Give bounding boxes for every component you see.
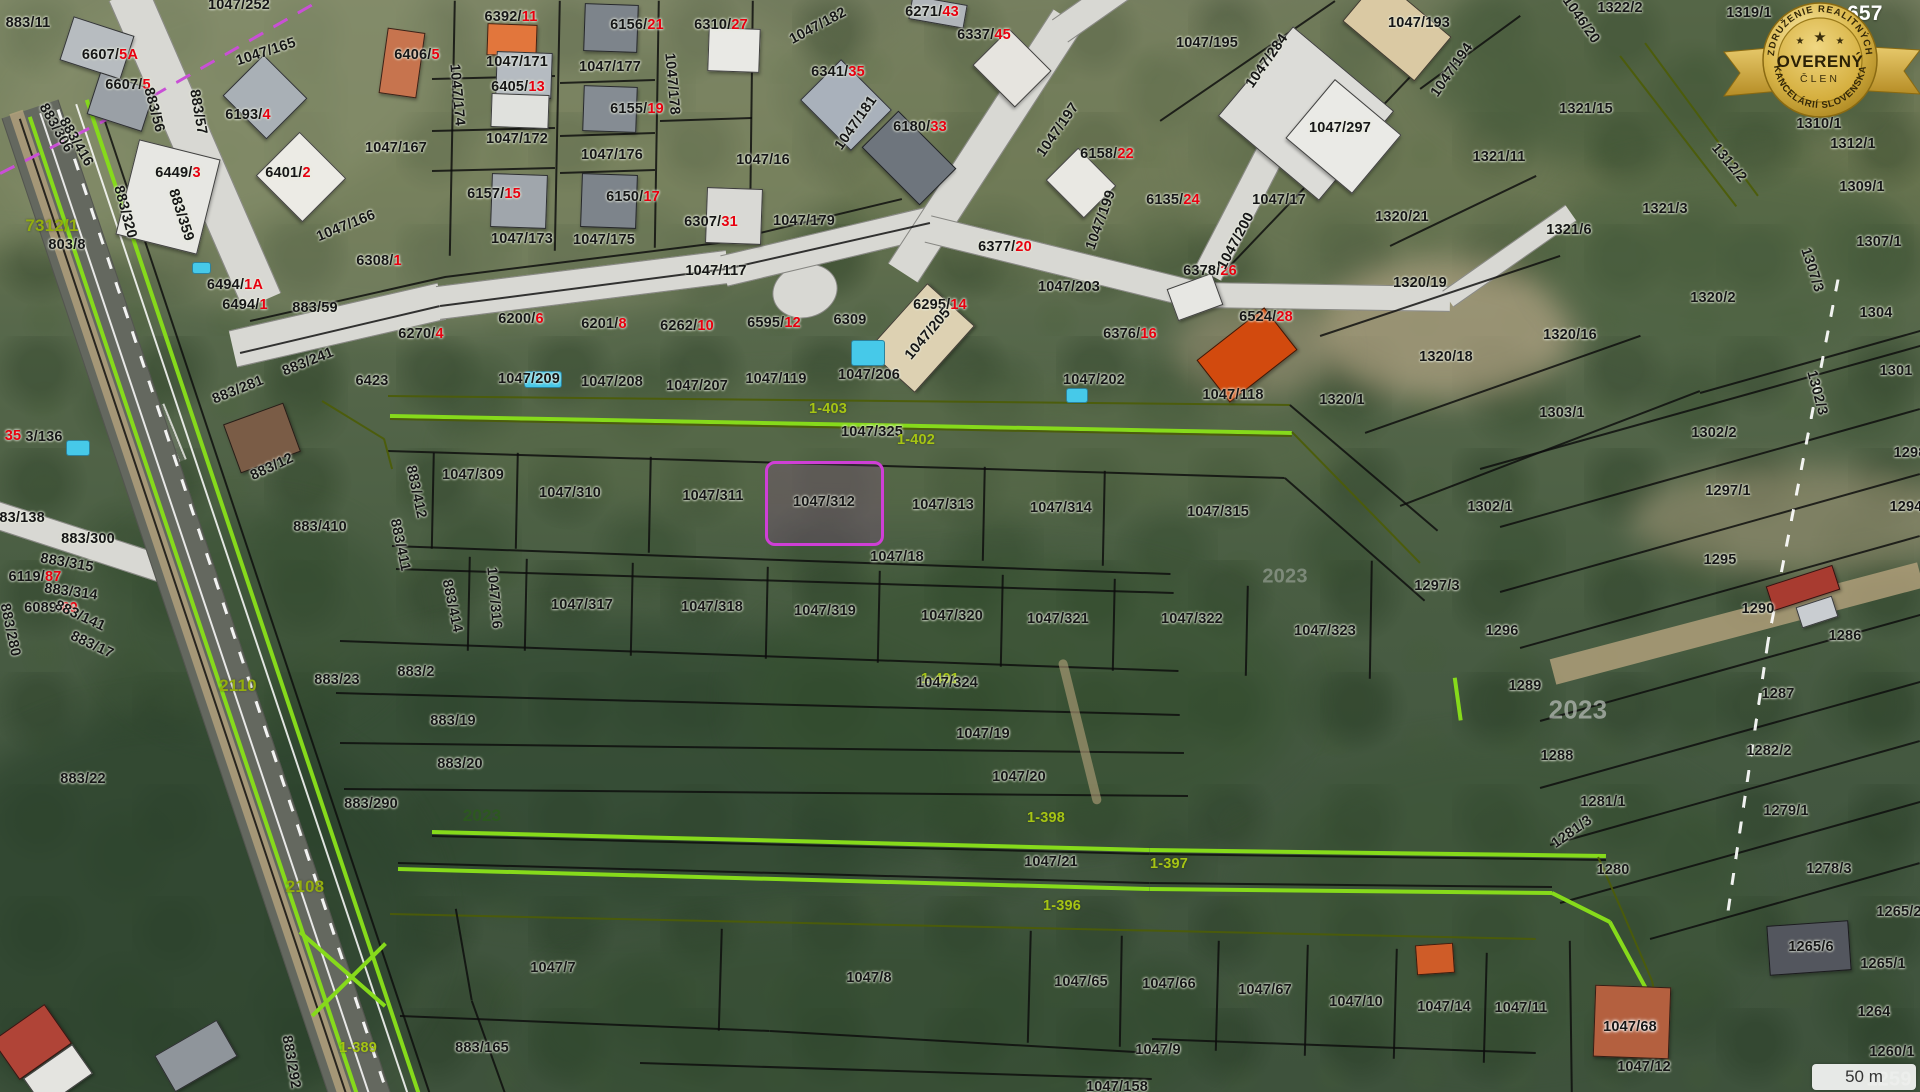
parcel-number: 1047/309 xyxy=(442,467,504,483)
parcel-label: 6308/1 xyxy=(356,253,402,269)
building-number: 11 xyxy=(522,9,538,25)
parcel-label: 1320/1 xyxy=(1319,392,1365,408)
parcel-number: 1297/3 xyxy=(1414,578,1460,594)
parcel-label: 1047/11 xyxy=(1494,1000,1547,1016)
parcel-label: 1279/1 xyxy=(1763,803,1809,819)
parcel-label: 1047/20 xyxy=(992,769,1046,785)
swimming-pool xyxy=(66,440,90,456)
parcel-label: 883/141 xyxy=(52,597,108,634)
parcel-label: 803/8 xyxy=(48,237,85,253)
parcel-number: 6607/ xyxy=(105,77,142,93)
parcel-label: 1047/252 xyxy=(208,0,270,13)
parcel-number: 2023 xyxy=(1262,566,1307,588)
parcel-number: 1304 xyxy=(1859,305,1892,321)
parcel-number: 883/414 xyxy=(439,578,466,634)
parcel-number: 1265/2 xyxy=(1876,904,1920,920)
parcel-number: 1320/21 xyxy=(1375,209,1429,225)
parcel-number: 1047/206 xyxy=(838,367,900,383)
parcel-number: 1047/171 xyxy=(486,54,548,70)
parcel-label: 1047/297 xyxy=(1309,120,1371,136)
parcel-label: 1320/16 xyxy=(1543,327,1597,343)
parcel-number: 1047/21 xyxy=(1024,854,1078,870)
building-number: 4 xyxy=(436,326,444,342)
parcel-number: 1298 xyxy=(1893,445,1920,461)
parcel-label: 1047/323 xyxy=(1294,623,1356,639)
parcel-label: 1047/318 xyxy=(681,599,743,615)
parcel-number: 1047/173 xyxy=(491,231,553,247)
parcel-number: 1264 xyxy=(1857,1004,1890,1020)
building-number: 15 xyxy=(504,186,521,202)
parcel-label: 1265/6 xyxy=(1788,939,1834,955)
parcel-label: 883/59 xyxy=(292,300,338,316)
parcel-number: 6341/ xyxy=(811,64,848,80)
scale-bar: 50 m xyxy=(1812,1064,1916,1090)
parcel-number: 1047/18 xyxy=(870,549,924,565)
parcel-label: 1287 xyxy=(1761,686,1794,702)
parcel-number: 883/138 xyxy=(0,510,45,526)
parcel-number: 1287 xyxy=(1761,686,1794,702)
parcel-number: 1047/321 xyxy=(1027,611,1089,627)
parcel-number: 6135/ xyxy=(1146,192,1183,208)
parcel-label: 6310/27 xyxy=(694,17,748,33)
parcel-number: 1047/175 xyxy=(573,232,635,248)
parcel-number: 1290 xyxy=(1741,601,1774,617)
parcel-label: 1-396 xyxy=(1043,898,1081,914)
parcel-number: 1047/310 xyxy=(539,485,601,501)
parcel-number: 883/2 xyxy=(397,664,434,680)
parcel-number: 1047/311 xyxy=(682,488,743,504)
parcel-label: 6271/43 xyxy=(905,4,959,20)
parcel-number: 1047/7 xyxy=(530,960,576,976)
parcel-number: 6494/ xyxy=(222,297,259,313)
swimming-pool xyxy=(192,262,211,274)
boundary-line xyxy=(455,909,473,1001)
parcel-label: 1047/167 xyxy=(365,140,427,156)
parcel-number: 6201/ xyxy=(581,316,618,332)
parcel-number: 1302/2 xyxy=(1691,425,1737,441)
building-number: 12 xyxy=(784,315,801,331)
parcel-label: 883/165 xyxy=(455,1040,509,1056)
parcel-label: 1297/1 xyxy=(1705,483,1751,499)
parcel-number: 883/290 xyxy=(344,796,398,812)
parcel-number: 883/280 xyxy=(0,602,23,658)
parcel-number: 1047/319 xyxy=(794,603,856,619)
parcel-number: 1047/322 xyxy=(1161,611,1223,627)
parcel-number: 1047/315 xyxy=(1187,504,1249,520)
parcel-number: 1265/1 xyxy=(1860,956,1906,972)
parcel-number: 1047/203 xyxy=(1038,279,1100,295)
building-number: 43 xyxy=(942,4,959,20)
parcel-number: 1286 xyxy=(1828,628,1861,644)
parcel-label: 6158/22 xyxy=(1080,146,1134,162)
parcel-label: 1286 xyxy=(1828,628,1861,644)
parcel-number: 1288 xyxy=(1540,748,1573,764)
parcel-number: 1-398 xyxy=(1027,810,1065,826)
parcel-number: 3/136 xyxy=(25,429,62,445)
parcel-label: 6401/2 xyxy=(265,165,311,181)
terrain-patch xyxy=(1630,465,1920,575)
parcel-number: 1302/1 xyxy=(1467,499,1513,515)
parcel-number: 883/59 xyxy=(292,300,338,316)
parcel-label: 1047/117 xyxy=(685,263,746,279)
parcel-number: 1321/6 xyxy=(1546,222,1592,238)
parcel-number: 1047/313 xyxy=(912,497,974,513)
boundary-line xyxy=(1453,678,1462,721)
parcel-number: 1047/297 xyxy=(1309,120,1371,136)
parcel-number: 6309 xyxy=(833,312,866,328)
boundary-line xyxy=(392,545,1170,575)
parcel-label: 6376/16 xyxy=(1103,326,1157,342)
parcel-number: 1282/2 xyxy=(1746,743,1792,759)
parcel-number: 6308/ xyxy=(356,253,393,269)
parcel-label: 1321/6 xyxy=(1546,222,1592,238)
parcel-label: 1322/2 xyxy=(1597,0,1643,16)
boundary-line xyxy=(383,439,393,470)
parcel-number: 1281/1 xyxy=(1580,794,1626,810)
building-number: 8 xyxy=(619,316,627,332)
parcel-label: 1302/3 xyxy=(1803,369,1830,417)
parcel-number: 6524/ xyxy=(1239,309,1276,325)
parcel-number: 1047/68 xyxy=(1603,1019,1657,1035)
parcel-label: 6406/5 xyxy=(394,47,440,63)
parcel-label: 1047/309 xyxy=(442,467,504,483)
parcel-number: 1047/17 xyxy=(1252,192,1306,208)
parcel-label: 1047/176 xyxy=(581,147,643,163)
parcel-label: 6307/31 xyxy=(684,214,738,230)
parcel-label: 6341/35 xyxy=(811,64,865,80)
parcel-label: 6156/21 xyxy=(610,17,664,33)
parcel-label: 1047/17 xyxy=(1252,192,1306,208)
parcel-label: 1047/182 xyxy=(787,4,849,47)
parcel-number: 883/300 xyxy=(61,531,115,547)
parcel-number: 1047/325 xyxy=(841,424,903,440)
parcel-number: 883/412 xyxy=(403,464,430,520)
parcel-number: 1280 xyxy=(1596,862,1629,878)
parcel-label: 883/22 xyxy=(60,771,106,787)
parcel-number: 1047/207 xyxy=(666,378,728,394)
parcel-label: 2108 xyxy=(286,877,325,897)
parcel-label: 1047/9 xyxy=(1135,1042,1181,1058)
parcel-number: 1047/14 xyxy=(1417,999,1471,1015)
parcel-label: 883/410 xyxy=(293,519,347,535)
parcel-label: 1047/314 xyxy=(1030,500,1092,516)
parcel-number: 1307/1 xyxy=(1856,234,1902,250)
parcel-number: 1047/118 xyxy=(1202,387,1263,403)
parcel-label: 1047/325 xyxy=(841,424,903,440)
parcel-number: 1047/182 xyxy=(787,4,849,47)
parcel-number: 883/141 xyxy=(52,597,108,634)
parcel-number: 1-403 xyxy=(809,401,847,417)
parcel-label: 1047/14 xyxy=(1417,999,1471,1015)
building-number: 4 xyxy=(263,107,271,123)
parcel-label: 883/2 xyxy=(397,664,434,680)
parcel-label: 1320/2 xyxy=(1690,290,1736,306)
parcel-label: 7312/1 xyxy=(25,216,78,236)
parcel-number: 1-389 xyxy=(339,1040,377,1056)
parcel-label: 1288 xyxy=(1540,748,1573,764)
boundary-line xyxy=(1369,561,1373,679)
parcel-label: 883/412 xyxy=(403,464,430,520)
parcel-number: 883/11 xyxy=(6,15,51,31)
boundary-line xyxy=(431,453,435,549)
parcel-number: 883/20 xyxy=(437,756,483,772)
terrain-patch xyxy=(520,920,1220,1092)
parcel-number: 1047/208 xyxy=(581,374,643,390)
parcel-number: 6377/ xyxy=(978,239,1015,255)
parcel-label: 1-397 xyxy=(1150,856,1188,872)
overeny-badge: ZDRUŽENIE REALITNÝCH KANCELÁRIÍ SLOVENSK… xyxy=(1722,0,1920,126)
parcel-label: 883/138 xyxy=(0,510,45,526)
parcel-number: 1047/158 xyxy=(1086,1079,1148,1092)
parcel-number: 2023 xyxy=(1549,695,1608,725)
parcel-label: 1047/68 xyxy=(1603,1019,1657,1035)
parcel-label: 6392/11 xyxy=(484,9,537,25)
parcel-label: 1047/209 xyxy=(498,371,560,387)
parcel-number: 1320/18 xyxy=(1419,349,1473,365)
parcel-number: 6376/ xyxy=(1103,326,1140,342)
building-number: 21 xyxy=(647,17,664,33)
parcel-number: 1047/324 xyxy=(916,675,978,691)
parcel-label: 1047/7 xyxy=(530,960,576,976)
parcel-number: 6156/ xyxy=(610,17,647,33)
parcel-label: 1047/19 xyxy=(956,726,1010,742)
parcel-number: 6607/ xyxy=(82,47,119,63)
parcel-label: 1265/2 xyxy=(1876,904,1920,920)
parcel-label: 6423 xyxy=(355,373,388,389)
parcel-label: 1047/175 xyxy=(573,232,635,248)
badge-member: ČLEN xyxy=(1800,72,1840,85)
parcel-number: 1321/3 xyxy=(1642,201,1688,217)
parcel-label: 6337/45 xyxy=(957,27,1011,43)
parcel-label: 1280 xyxy=(1596,862,1629,878)
parcel-number: 7312/1 xyxy=(25,216,78,235)
parcel-label: 883/23 xyxy=(314,672,360,688)
parcel-label: 883/11 xyxy=(6,15,51,31)
parcel-label: 3/136 xyxy=(25,429,62,445)
parcel-label: 1302/2 xyxy=(1691,425,1737,441)
building-number: 20 xyxy=(1015,239,1032,255)
building-number: 1 xyxy=(394,253,402,269)
building-number: 19 xyxy=(647,101,664,117)
parcel-label: 1301 xyxy=(1879,363,1912,379)
svg-text:★: ★ xyxy=(1836,36,1845,47)
parcel-label: 1047/10 xyxy=(1329,994,1383,1010)
parcel-label: 1047/320 xyxy=(921,608,983,624)
parcel-number: 883/19 xyxy=(430,713,476,729)
building-number: 24 xyxy=(1183,192,1200,208)
parcel-label: 1320/19 xyxy=(1393,275,1447,291)
building-number: 22 xyxy=(1117,146,1134,162)
parcel-number: 803/8 xyxy=(48,237,85,253)
building-number: 3 xyxy=(193,165,201,181)
parcel-number: 6155/ xyxy=(610,101,647,117)
parcel-label: 6449/3 xyxy=(155,165,201,181)
parcel-label: 1302/1 xyxy=(1467,499,1513,515)
parcel-label: 1320/21 xyxy=(1375,209,1429,225)
parcel-number: 6310/ xyxy=(694,17,731,33)
parcel-label: 1312/1 xyxy=(1830,136,1876,152)
building xyxy=(1415,943,1455,976)
parcel-label: 1297/3 xyxy=(1414,578,1460,594)
parcel-number: 6307/ xyxy=(684,214,721,230)
parcel-label: 1282/2 xyxy=(1746,743,1792,759)
parcel-number: 1312/1 xyxy=(1830,136,1876,152)
parcel-number: 1295 xyxy=(1703,552,1736,568)
parcel-label: 6607/5A xyxy=(82,47,138,63)
parcel-label: 1047/67 xyxy=(1238,982,1292,998)
parcel-label: 883/300 xyxy=(61,531,115,547)
parcel-label: 6155/19 xyxy=(610,101,664,117)
parcel-label: 1047/158 xyxy=(1086,1079,1148,1092)
parcel-number: 6150/ xyxy=(606,189,643,205)
parcel-number: 1047/8 xyxy=(846,970,892,986)
parcel-number: 6406/ xyxy=(394,47,431,63)
building-number: 13 xyxy=(528,79,545,95)
parcel-number: 1047/67 xyxy=(1238,982,1292,998)
parcel-label: 883/290 xyxy=(344,796,398,812)
parcel-label: 1047/324 xyxy=(916,675,978,691)
parcel-number: 1320/1 xyxy=(1319,392,1365,408)
parcel-number: 1294 xyxy=(1889,499,1920,515)
parcel-number: 6271/ xyxy=(905,4,942,20)
map-canvas[interactable]: 657 ZDRUŽENIE REALITNÝCH KANCELÁRIÍ SLOV… xyxy=(0,0,1920,1092)
swimming-pool xyxy=(1066,388,1088,403)
parcel-label: 1047/310 xyxy=(539,485,601,501)
parcel-label: 1047/119 xyxy=(745,371,806,387)
building-number: 31 xyxy=(721,214,738,230)
parcel-label: 883/20 xyxy=(437,756,483,772)
parcel-label: 6193/4 xyxy=(225,107,271,123)
parcel-number: 1047/202 xyxy=(1063,372,1125,388)
parcel-label: 2023 xyxy=(1549,695,1608,726)
parcel-number: 883/165 xyxy=(455,1040,509,1056)
building-number: 5A xyxy=(119,47,138,63)
parcel-number: 1321/11 xyxy=(1472,149,1525,165)
parcel-label: 6494/1 xyxy=(222,297,268,313)
parcel-label: 1047/207 xyxy=(666,378,728,394)
parcel-number: 6200/ xyxy=(498,311,535,327)
parcel-label: 883/19 xyxy=(430,713,476,729)
parcel-label: 1295 xyxy=(1703,552,1736,568)
parcel-number: 1047/19 xyxy=(956,726,1010,742)
parcel-number: 6193/ xyxy=(225,107,262,123)
building-number: 45 xyxy=(994,27,1011,43)
parcel-label: 1309/1 xyxy=(1839,179,1885,195)
parcel-number: 6262/ xyxy=(660,318,697,334)
swimming-pool xyxy=(851,340,885,366)
parcel-number: 1047/10 xyxy=(1329,994,1383,1010)
parcel-label: 1047/172 xyxy=(486,131,548,147)
parcel-number: 1047/167 xyxy=(365,140,427,156)
parcel-number: 883/22 xyxy=(60,771,106,787)
parcel-label: 6262/10 xyxy=(660,318,714,334)
parcel-number: 1047/320 xyxy=(921,608,983,624)
building-number: 6 xyxy=(536,311,544,327)
parcel-label: 1047/179 xyxy=(773,213,835,229)
parcel-number: 1047/16 xyxy=(736,152,790,168)
parcel-label: 1321/15 xyxy=(1559,101,1613,117)
parcel-label: 1047/315 xyxy=(1187,504,1249,520)
parcel-label: 1298 xyxy=(1893,445,1920,461)
parcel-label: 883/414 xyxy=(439,578,466,634)
parcel-label: 1047/322 xyxy=(1161,611,1223,627)
parcel-label: 1047/316 xyxy=(483,566,504,629)
parcel-label: 1260/1 xyxy=(1869,1044,1915,1060)
parcel-label: 1047/118 xyxy=(1202,387,1263,403)
parcel-label: 1047/12 xyxy=(1617,1059,1671,1075)
building-number: 17 xyxy=(643,189,660,205)
parcel-number: 6337/ xyxy=(957,27,994,43)
parcel-label: 1303/1 xyxy=(1539,405,1585,421)
parcel-number: 6405/ xyxy=(491,79,528,95)
badge-stars: ★ xyxy=(1796,36,1805,47)
parcel-number: 6270/ xyxy=(398,326,435,342)
parcel-number: 1047/177 xyxy=(579,59,641,75)
parcel-number: 6449/ xyxy=(155,165,192,181)
parcel-number: 1321/15 xyxy=(1559,101,1613,117)
parcel-number: 1047/252 xyxy=(208,0,270,13)
parcel-number: 1279/1 xyxy=(1763,803,1809,819)
parcel-number: 1303/1 xyxy=(1539,405,1585,421)
parcel-number: 1301 xyxy=(1879,363,1912,379)
parcel-label: 1304 xyxy=(1859,305,1892,321)
parcel-number: 1320/16 xyxy=(1543,327,1597,343)
building-number: 10 xyxy=(697,318,714,334)
building-number: 5 xyxy=(432,47,440,63)
parcel-number: 2108 xyxy=(286,877,325,896)
parcel-label: 6270/4 xyxy=(398,326,444,342)
parcel-label: 1047/208 xyxy=(581,374,643,390)
parcel-label: 1047/173 xyxy=(491,231,553,247)
parcel-label: 1-402 xyxy=(897,432,935,448)
building-number: 2 xyxy=(303,165,311,181)
parcel-number: 6119/ xyxy=(8,569,45,585)
parcel-number: 1265/6 xyxy=(1788,939,1834,955)
parcel-number: 883/281 xyxy=(210,373,266,408)
parcel-label: 2023 xyxy=(1262,566,1307,589)
parcel-number: 1302/3 xyxy=(1803,369,1830,417)
parcel-label: 1047/317 xyxy=(551,597,613,613)
parcel-number: 6401/ xyxy=(265,165,302,181)
parcel-number: 1047/314 xyxy=(1030,500,1092,516)
parcel-label: 1265/1 xyxy=(1860,956,1906,972)
parcel-label: 6157/15 xyxy=(467,186,521,202)
parcel-label: 1047/195 xyxy=(1176,35,1238,51)
parcel-number: 1047/66 xyxy=(1142,976,1196,992)
parcel-label: 6595/12 xyxy=(747,315,801,331)
parcel-label: 1047/313 xyxy=(912,497,974,513)
parcel-number: 2110 xyxy=(219,676,257,695)
parcel-number: 1047/195 xyxy=(1176,35,1238,51)
parcel-label: 1047/21 xyxy=(1024,854,1078,870)
parcel-label: 6180/33 xyxy=(893,119,947,135)
parcel-label: 1047/311 xyxy=(682,488,743,504)
building-number: 16 xyxy=(1140,326,1157,342)
parcel-number: 6595/ xyxy=(747,315,784,331)
parcel-label: 6150/17 xyxy=(606,189,660,205)
parcel-label: 1047/18 xyxy=(870,549,924,565)
parcel-label: 1047/203 xyxy=(1038,279,1100,295)
parcel-label: 35 xyxy=(5,428,22,444)
parcel-number: 6392/ xyxy=(484,9,521,25)
parcel-label: 1294 xyxy=(1889,499,1920,515)
parcel-number: 1047/193 xyxy=(1388,15,1450,31)
parcel-label: 1047/66 xyxy=(1142,976,1196,992)
badge-title: OVERENÝ xyxy=(1777,52,1864,71)
parcel-label: 6377/20 xyxy=(978,239,1032,255)
terrain-patch xyxy=(740,560,1300,840)
parcel-label: 1047/65 xyxy=(1054,974,1108,990)
